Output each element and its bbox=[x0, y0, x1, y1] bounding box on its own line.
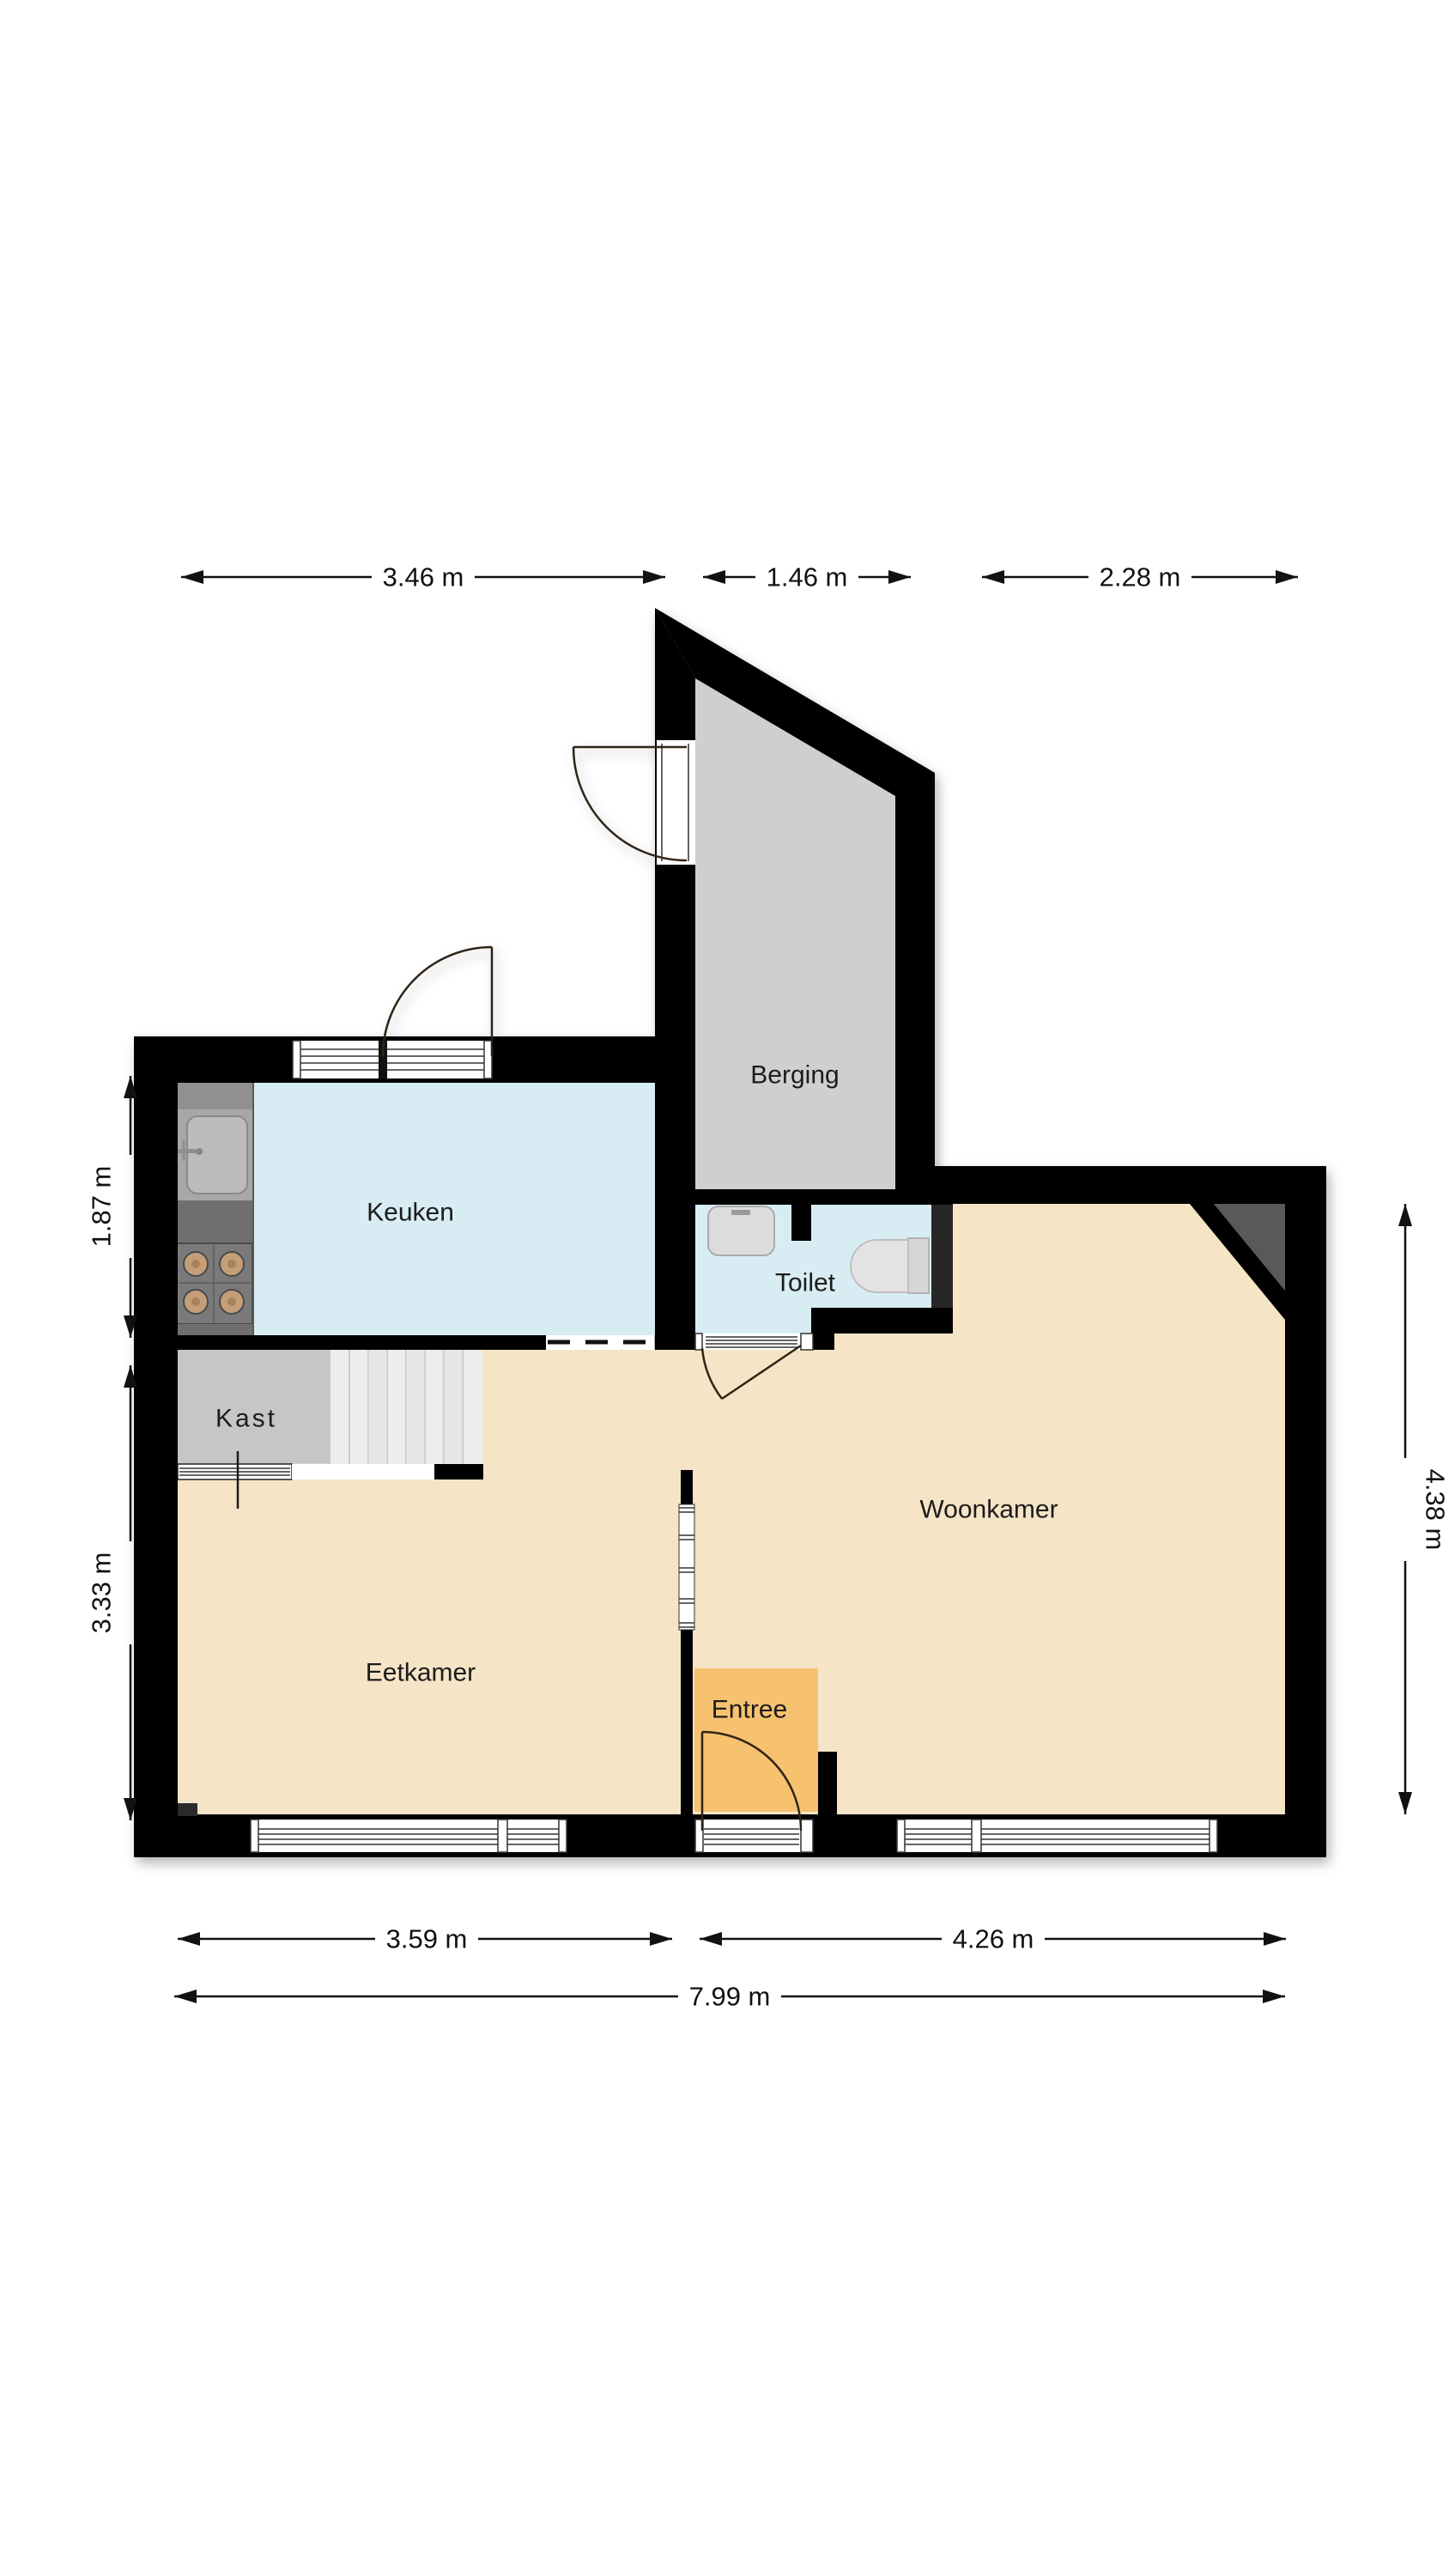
wall-toilet-right-block bbox=[931, 1205, 953, 1308]
wall-keuken-bottom bbox=[178, 1335, 546, 1350]
counter-top-segment bbox=[178, 1083, 253, 1109]
keuken-top-openings bbox=[293, 947, 492, 1078]
room-floor-hall-left bbox=[482, 1350, 693, 1471]
wall-kast-stub bbox=[434, 1464, 483, 1479]
dim-left-187: 1.87 m bbox=[87, 1076, 138, 1338]
room-label-entree: Entree bbox=[712, 1696, 787, 1724]
kast-door-gap bbox=[292, 1464, 434, 1479]
stairs-tread-shade bbox=[368, 1350, 387, 1464]
washbasin-faucet-icon bbox=[731, 1210, 750, 1215]
wall-corner-notch bbox=[178, 1803, 197, 1816]
dim-top-146: 1.46 m bbox=[703, 562, 911, 592]
dim-label-187: 1.87 m bbox=[87, 1166, 117, 1248]
divider-glass bbox=[679, 1504, 694, 1630]
toilet-door-post bbox=[695, 1334, 702, 1350]
entree-door-post bbox=[801, 1820, 813, 1852]
eetkamer-window-opening bbox=[251, 1820, 567, 1852]
room-floor-hall-right bbox=[834, 1334, 953, 1814]
dim-label-333: 3.33 m bbox=[87, 1552, 117, 1634]
eetkamer-window-post bbox=[251, 1820, 258, 1852]
woonkamer-window bbox=[897, 1820, 1217, 1852]
wall-divider-upper-stub bbox=[681, 1470, 693, 1504]
wall-right-exterior bbox=[1285, 1166, 1326, 1857]
stairs bbox=[330, 1350, 482, 1464]
wall-top-woonkamer bbox=[935, 1166, 1326, 1204]
building: Berging Keuken Toilet Kast Eetkamer Woon… bbox=[134, 608, 1326, 1857]
wall-berging-right bbox=[895, 773, 935, 1205]
dim-label-359: 3.59 m bbox=[386, 1924, 468, 1954]
dim-bottom-799: 7.99 m bbox=[174, 1982, 1285, 2012]
kitchen-counter bbox=[175, 1083, 253, 1335]
wall-left-exterior bbox=[134, 1036, 178, 1857]
faucet-icon bbox=[175, 1149, 196, 1153]
room-label-eetkamer: Eetkamer bbox=[366, 1659, 476, 1687]
faucet-spout bbox=[196, 1148, 203, 1155]
keuken-window-post bbox=[293, 1041, 300, 1078]
room-floor-eetkamer bbox=[178, 1464, 681, 1814]
wall-berging-left bbox=[655, 608, 695, 1350]
dim-bottom-359: 3.59 m bbox=[178, 1924, 672, 1954]
keuken-window-opening bbox=[293, 1041, 492, 1078]
dim-left-333: 3.33 m bbox=[87, 1365, 138, 1820]
counter-mid-segment bbox=[178, 1200, 253, 1243]
wall-toilet-step bbox=[811, 1308, 834, 1350]
divider-glazing bbox=[679, 1504, 694, 1630]
floor-plan-canvas: Berging Keuken Toilet Kast Eetkamer Woon… bbox=[0, 0, 1449, 2576]
room-floor-entree bbox=[694, 1668, 818, 1812]
dim-label-426: 4.26 m bbox=[953, 1924, 1034, 1954]
open-connection-keuken bbox=[546, 1335, 654, 1350]
toilet-door-post bbox=[801, 1334, 813, 1350]
room-label-woonkamer: Woonkamer bbox=[919, 1496, 1058, 1524]
counter-bottom-segment bbox=[178, 1324, 253, 1335]
eetkamer-window-post bbox=[559, 1820, 567, 1852]
berging-door bbox=[573, 740, 695, 865]
wall-divider-lower bbox=[681, 1630, 693, 1816]
dim-label-438: 4.38 m bbox=[1421, 1469, 1449, 1551]
toilet-bowl bbox=[851, 1240, 908, 1292]
stairs-tread-shade bbox=[406, 1350, 425, 1464]
room-label-berging: Berging bbox=[750, 1061, 839, 1090]
room-label-kast: Kast bbox=[215, 1405, 277, 1433]
wall-berging-toilet-divider bbox=[693, 1189, 953, 1205]
sink-basin bbox=[187, 1116, 247, 1194]
woonkamer-window-post bbox=[897, 1820, 905, 1852]
dim-top-346: 3.46 m bbox=[181, 562, 665, 592]
dim-label-228: 2.28 m bbox=[1100, 562, 1181, 592]
dim-right-438: 4.38 m bbox=[1398, 1204, 1449, 1814]
toilet-cistern bbox=[908, 1238, 929, 1293]
woonkamer-window-post bbox=[1210, 1820, 1217, 1852]
room-label-toilet: Toilet bbox=[775, 1269, 836, 1297]
dim-label-799: 7.99 m bbox=[689, 1982, 771, 2012]
eetkamer-window bbox=[251, 1820, 567, 1852]
wall-toilet-stub bbox=[791, 1205, 811, 1241]
stairs-tread-shade bbox=[444, 1350, 463, 1464]
eetkamer-window-mullion bbox=[498, 1820, 507, 1852]
keuken-window-post bbox=[484, 1041, 492, 1078]
woonkamer-window-mullion bbox=[972, 1820, 981, 1852]
dim-top-228: 2.28 m bbox=[982, 562, 1298, 592]
woonkamer-window-opening bbox=[897, 1820, 1217, 1852]
dim-label-146: 1.46 m bbox=[767, 562, 848, 592]
dim-label-346: 3.46 m bbox=[383, 562, 464, 592]
floor-plan-page: Berging Keuken Toilet Kast Eetkamer Woon… bbox=[0, 0, 1449, 2576]
wall-entree-stub bbox=[818, 1752, 837, 1816]
room-label-keuken: Keuken bbox=[367, 1199, 454, 1227]
entree-door-opening bbox=[695, 1820, 813, 1852]
dim-bottom-426: 4.26 m bbox=[700, 1924, 1286, 1954]
